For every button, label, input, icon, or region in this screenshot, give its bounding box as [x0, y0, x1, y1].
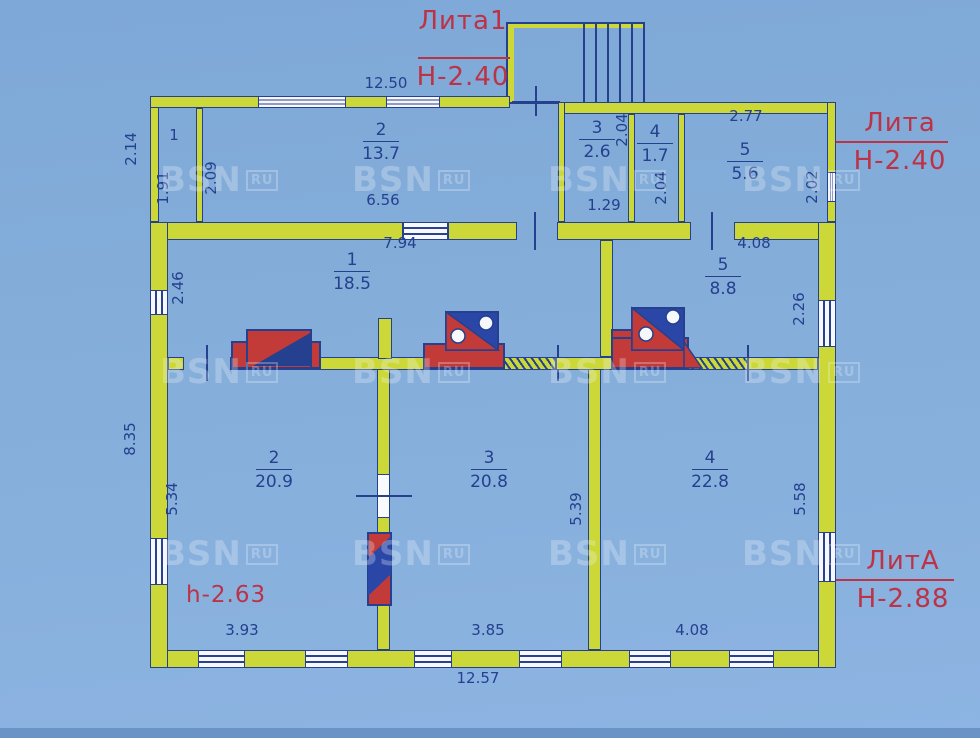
main-room1-label: 1 18.5	[302, 250, 402, 294]
room-number: 4	[637, 122, 673, 144]
floor-plan-canvas: 12.50 6.56 1.29 2.77 7.94 4.08 3.93 3.85…	[0, 0, 980, 738]
dim-room5-top: 4.08	[718, 234, 790, 252]
room-area: 20.9	[224, 470, 324, 492]
litA-title: ЛитА	[848, 546, 958, 576]
room-number: 2	[363, 120, 399, 142]
dim-annex-room5-width: 2.77	[710, 107, 782, 125]
lita-height: Н-2.40	[845, 146, 955, 176]
lita1-line	[418, 57, 510, 59]
annex-room5-label: 5 5.6	[695, 140, 795, 184]
dim-room2-left: 5.34	[163, 469, 181, 529]
dim-annex-left-outside: 2.14	[122, 119, 140, 179]
main-room5-label: 5 8.8	[673, 255, 773, 299]
room-area: 13.7	[331, 142, 431, 164]
annex-room4-label: 4 1.7	[605, 122, 705, 166]
photo-edge	[0, 728, 980, 738]
litA-line	[836, 579, 954, 581]
room-number: 5	[705, 255, 741, 277]
dim-room3-bottom: 3.85	[452, 621, 524, 639]
dim-room4-bottom: 4.08	[656, 621, 728, 639]
lita1-title: Лита1	[408, 6, 518, 36]
main-room3-label: 3 20.8	[439, 448, 539, 492]
room-number: 3	[471, 448, 507, 470]
dim-room3-right: 5.39	[567, 479, 585, 539]
room-number: 4	[692, 448, 728, 470]
room-number: 2	[256, 448, 292, 470]
room-area: 20.8	[439, 470, 539, 492]
main-room4-label: 4 22.8	[660, 448, 760, 492]
dim-annex-room2-width: 6.56	[343, 191, 423, 209]
dim-room4-right: 5.58	[791, 469, 809, 529]
stove-icon	[368, 533, 391, 605]
dim-annex-room1-height: 1.91	[154, 158, 172, 218]
annex-room1-number: 1	[164, 126, 184, 144]
lita-title: Лита	[845, 108, 955, 138]
dim-hall-left: 2.46	[169, 258, 187, 318]
room-area: 18.5	[302, 272, 402, 294]
dim-annex-room4-below: 2.04	[652, 158, 670, 218]
main-room2-label: 2 20.9	[224, 448, 324, 492]
stove-icon	[612, 308, 702, 368]
litA-height: Н-2.88	[848, 584, 958, 614]
room-area: 1.7	[605, 144, 705, 166]
ceiling-height-note: h-2.63	[186, 582, 266, 608]
room-area: 22.8	[660, 470, 760, 492]
room-area: 8.8	[673, 277, 773, 299]
room-number: 1	[334, 250, 370, 272]
dim-annex-room3-width: 1.29	[570, 196, 638, 214]
lita-line	[836, 141, 948, 143]
dim-bottom-width: 12.57	[438, 669, 518, 687]
room-area: 5.6	[695, 162, 795, 184]
dim-room2-bottom: 3.93	[206, 621, 278, 639]
dim-room5-right: 2.26	[790, 279, 808, 339]
stove-icon	[232, 330, 320, 368]
dim-annex-room5-right: 2.02	[803, 157, 821, 217]
dim-annex-room2-left: 2.09	[202, 148, 220, 208]
annex-room2-label: 2 13.7	[331, 120, 431, 164]
stove-icon	[424, 312, 504, 368]
room-number: 5	[727, 140, 763, 162]
dim-left-outside: 8.35	[121, 409, 139, 469]
lita1-height: Н-2.40	[408, 62, 518, 92]
